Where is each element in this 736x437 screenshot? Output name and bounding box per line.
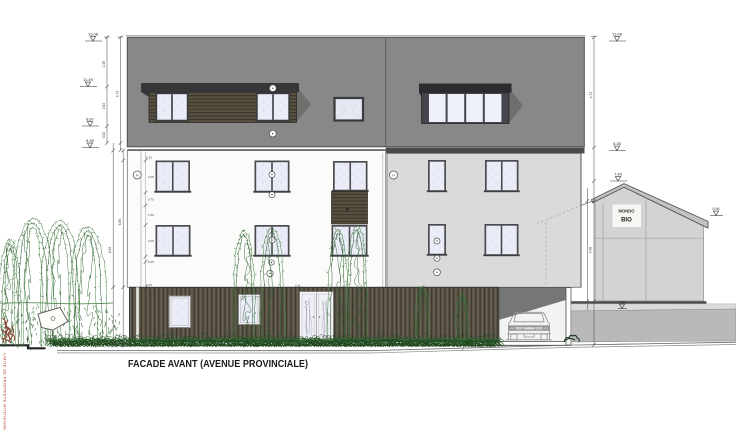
svg-text:1.50: 1.50 — [148, 213, 154, 217]
svg-text:5.96: 5.96 — [713, 207, 720, 211]
svg-text:2.11: 2.11 — [295, 284, 301, 288]
svg-text:8.35: 8.35 — [108, 247, 112, 254]
svg-text:8.35: 8.35 — [86, 138, 95, 143]
svg-text:2.05: 2.05 — [148, 175, 154, 179]
svg-text:0.75: 0.75 — [148, 198, 154, 202]
svg-text:2.05: 2.05 — [148, 239, 154, 243]
svg-text:4.06: 4.06 — [589, 247, 593, 254]
svg-text:8.87: 8.87 — [86, 116, 95, 121]
svg-text:2.88: 2.88 — [619, 300, 625, 304]
svg-text:BIO: BIO — [621, 218, 632, 224]
svg-text:13.08: 13.08 — [88, 31, 99, 36]
svg-text:6.90: 6.90 — [118, 219, 122, 226]
svg-text:0.50: 0.50 — [148, 292, 154, 296]
svg-text:4.73: 4.73 — [589, 92, 593, 99]
svg-text:13.08: 13.08 — [612, 31, 623, 36]
svg-text:FACADE AVANT (AVENUE PROVINCIA: FACADE AVANT (AVENUE PROVINCIALE) — [128, 359, 308, 370]
svg-text:0.52: 0.52 — [102, 132, 106, 139]
svg-text:2.62: 2.62 — [102, 103, 106, 110]
svg-text:1.59: 1.59 — [102, 61, 106, 68]
svg-text:11.49: 11.49 — [83, 77, 93, 82]
svg-text:0.15: 0.15 — [146, 156, 152, 160]
svg-text:8.35: 8.35 — [613, 141, 622, 146]
svg-text:0.45: 0.45 — [148, 260, 154, 264]
svg-text:MONDO: MONDO — [618, 209, 635, 214]
svg-text:LIMITE DE PROPRIETE MITOYENNE: LIMITE DE PROPRIETE MITOYENNE — [3, 353, 8, 430]
svg-text:4.73: 4.73 — [115, 91, 119, 98]
svg-text:0.45: 0.45 — [146, 283, 152, 287]
svg-text:7.45: 7.45 — [614, 171, 623, 176]
